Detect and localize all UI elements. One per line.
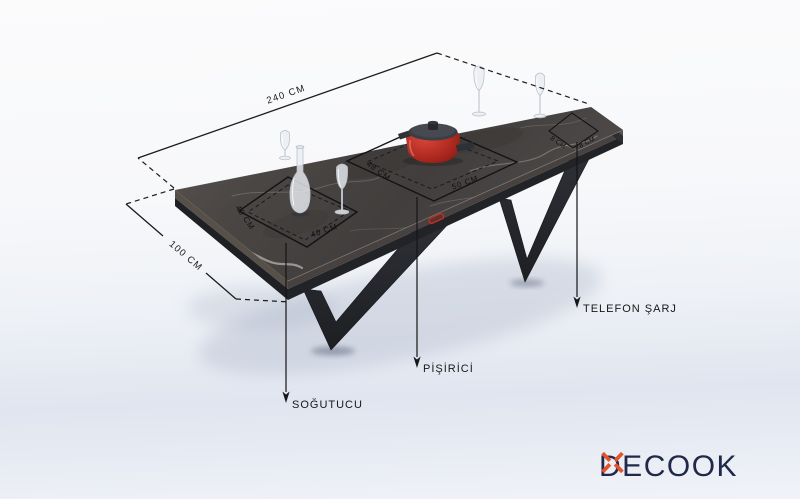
brand-logo: DE COOK	[599, 449, 789, 485]
logo-x-icon	[600, 451, 625, 474]
dimension-length-label: 240 CM	[265, 83, 307, 107]
decanter	[290, 146, 310, 217]
arrow-down-icon	[413, 357, 420, 369]
logo-suffix: COOK	[644, 450, 738, 484]
dimension-width-line	[126, 204, 163, 236]
product-render-stage: 40 CM 40 CM 48 CM 50 CM 8 CM 8 CM	[0, 0, 800, 499]
callout-cooler-label: SOĞUTUCU	[292, 398, 363, 411]
callout-cooker-label: PİŞİRİCİ	[423, 362, 474, 375]
champagne-flute-1	[280, 131, 291, 160]
champagne-flute-3	[473, 66, 486, 116]
dimension-width-label: 100 CM	[167, 239, 205, 274]
scene: 40 CM 40 CM 48 CM 50 CM 8 CM 8 CM	[0, 0, 800, 499]
callout-charger-label: TELEFON ŞARJ	[583, 303, 677, 315]
arrow-down-icon	[282, 392, 289, 404]
champagne-flute-4	[534, 73, 546, 118]
